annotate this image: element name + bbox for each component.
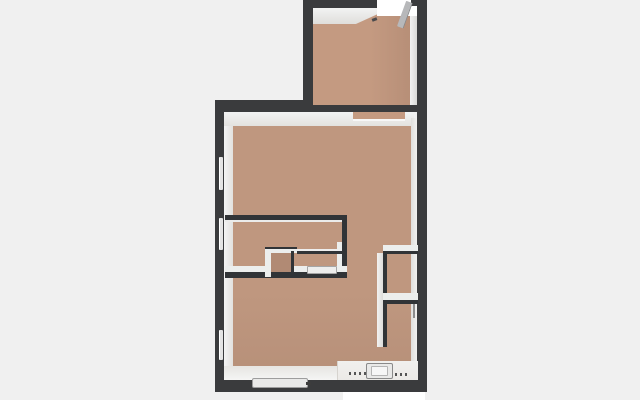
right-partition-mid-stub-face <box>383 293 418 300</box>
main-top-wall-left <box>215 100 303 112</box>
threshold-handle-mark <box>306 382 311 385</box>
partition-wall-top-face <box>225 220 347 222</box>
upper-room-right-wall-face <box>410 10 417 105</box>
pass-through-opening <box>353 112 405 121</box>
bottom-outer-wall <box>215 380 427 392</box>
fixture-vent-right <box>395 373 410 376</box>
right-partition-top-stub <box>383 251 418 254</box>
closet-box1-east-wall <box>291 251 294 273</box>
closet-box2-top-wall <box>297 251 342 254</box>
exterior-white-patch <box>343 392 425 400</box>
toilet-lid <box>371 366 388 376</box>
door-jamb-mark <box>413 304 415 318</box>
fixture-vent-left <box>349 372 367 375</box>
window-1 <box>219 157 223 190</box>
window-3 <box>219 330 223 360</box>
closet-box1-floor <box>271 253 291 272</box>
right-wall-face <box>411 118 417 361</box>
closet-box2-counter <box>307 266 337 274</box>
left-wall-face <box>224 126 233 380</box>
main-top-wall-right <box>313 105 417 112</box>
floorplan-canvas[interactable] <box>0 0 640 400</box>
right-outer-wall <box>417 112 427 392</box>
bottom-door-threshold <box>252 378 308 388</box>
window-2 <box>219 218 223 250</box>
